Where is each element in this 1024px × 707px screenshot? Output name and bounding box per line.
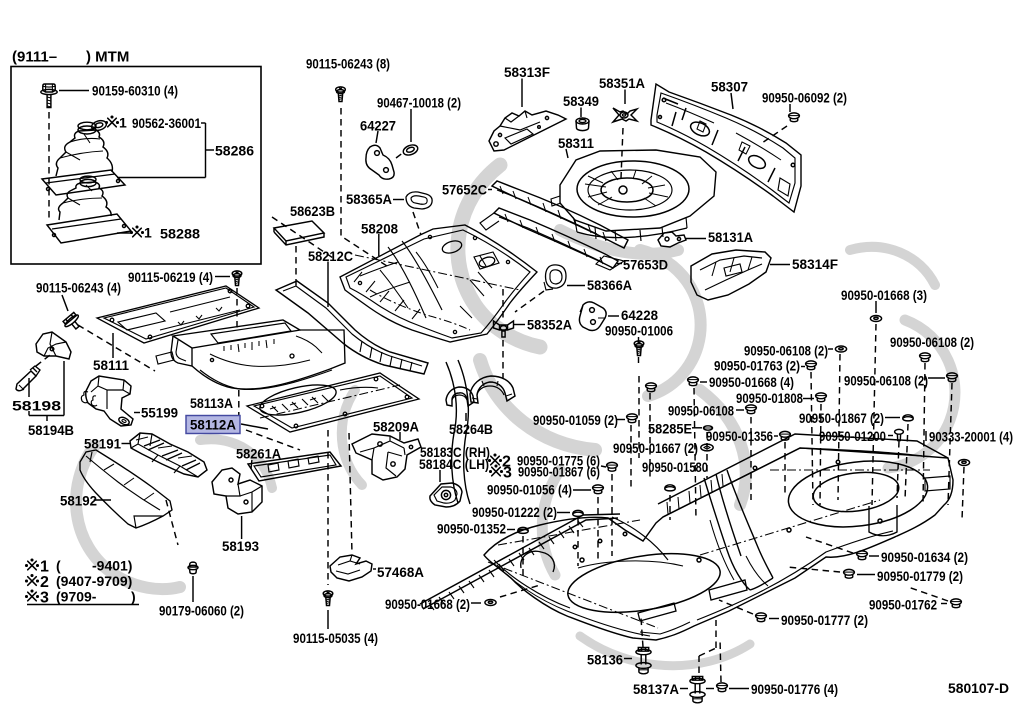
- svg-text:90950-01580: 90950-01580: [642, 459, 708, 475]
- svg-text:90950-01763 (2): 90950-01763 (2): [714, 358, 800, 374]
- svg-text:58623B: 58623B: [290, 203, 335, 219]
- svg-text:90950-01667 (2): 90950-01667 (2): [613, 440, 698, 456]
- svg-text:58307: 58307: [711, 79, 748, 95]
- svg-text:64228: 64228: [621, 307, 658, 323]
- svg-text:90950-01777 (2): 90950-01777 (2): [781, 612, 868, 628]
- svg-text:580107-D: 580107-D: [948, 680, 1009, 696]
- svg-text:90950-06108 (2): 90950-06108 (2): [890, 334, 974, 350]
- svg-text:58285E: 58285E: [648, 421, 692, 437]
- svg-text:90115-06219 (4): 90115-06219 (4): [128, 269, 213, 285]
- svg-text:90950-01352: 90950-01352: [437, 521, 506, 537]
- svg-text:90950-01867 (2): 90950-01867 (2): [799, 410, 884, 426]
- svg-text:90115-05035 (4): 90115-05035 (4): [293, 630, 378, 646]
- svg-text:58137A: 58137A: [633, 681, 679, 697]
- svg-text:90159-60310 (4): 90159-60310 (4): [92, 83, 178, 99]
- svg-text:3: 3: [503, 465, 512, 482]
- svg-text:58191: 58191: [84, 436, 121, 452]
- svg-text:58131A: 58131A: [708, 229, 753, 245]
- svg-text:90950-06108 (2): 90950-06108 (2): [844, 373, 928, 389]
- svg-text:90950-01867 (6): 90950-01867 (6): [518, 464, 600, 480]
- svg-text:90950-01668 (3): 90950-01668 (3): [841, 287, 927, 303]
- svg-text:58351A: 58351A: [599, 75, 645, 91]
- svg-text:90950-01808: 90950-01808: [736, 390, 803, 406]
- svg-text:58313F: 58313F: [504, 64, 550, 80]
- svg-text:90179-06060 (2): 90179-06060 (2): [159, 603, 244, 619]
- svg-text:58113A: 58113A: [190, 395, 233, 411]
- svg-text:90115-06243 (4): 90115-06243 (4): [36, 280, 121, 296]
- svg-text:90950-01006: 90950-01006: [605, 323, 673, 339]
- svg-text:58365A: 58365A: [346, 191, 392, 207]
- svg-text:90950-01776 (4): 90950-01776 (4): [751, 681, 838, 697]
- svg-text:58208: 58208: [361, 221, 398, 237]
- svg-text:): ): [131, 589, 136, 605]
- svg-text:58193: 58193: [222, 538, 259, 554]
- svg-text:55199: 55199: [141, 405, 178, 421]
- svg-text:(: (: [56, 558, 61, 574]
- svg-text:90950-01059 (2): 90950-01059 (2): [533, 412, 618, 428]
- svg-text:58288: 58288: [160, 226, 200, 242]
- svg-text:58264B: 58264B: [449, 421, 493, 437]
- svg-text:58286: 58286: [215, 143, 254, 159]
- svg-text:90950-01634 (2): 90950-01634 (2): [881, 549, 968, 565]
- svg-text:90333-20001 (4): 90333-20001 (4): [929, 429, 1013, 445]
- svg-text:90950-06108 (2): 90950-06108 (2): [744, 343, 828, 359]
- svg-text:(9407-9709): (9407-9709): [56, 573, 132, 589]
- svg-text:58112A: 58112A: [190, 417, 236, 433]
- svg-text:58314F: 58314F: [792, 256, 838, 272]
- svg-text:58194B: 58194B: [28, 422, 74, 438]
- svg-text:58111: 58111: [93, 357, 129, 373]
- svg-text:57653D: 57653D: [623, 257, 668, 273]
- svg-text:(9111–: (9111–: [12, 49, 57, 66]
- svg-text:1: 1: [40, 559, 49, 576]
- svg-text:90950-01356: 90950-01356: [706, 428, 773, 444]
- svg-text:58349: 58349: [563, 93, 599, 109]
- svg-text:90950-01056 (4): 90950-01056 (4): [487, 482, 572, 498]
- svg-text:57652C: 57652C: [442, 182, 487, 198]
- svg-text:90950-06108: 90950-06108: [668, 403, 734, 419]
- svg-text:90115-06243 (8): 90115-06243 (8): [306, 56, 390, 72]
- svg-text:) MTM: ) MTM: [86, 49, 129, 66]
- svg-text:(9709-: (9709-: [56, 589, 97, 605]
- svg-text:1: 1: [144, 225, 152, 241]
- svg-text:58209A: 58209A: [373, 418, 419, 434]
- svg-text:3: 3: [40, 590, 49, 607]
- svg-text:64227: 64227: [360, 118, 396, 134]
- svg-text:90950-01668 (4): 90950-01668 (4): [709, 374, 794, 390]
- svg-text:90950-06092 (2): 90950-06092 (2): [762, 90, 847, 106]
- svg-text:90950-01762: 90950-01762: [869, 597, 937, 613]
- svg-text:58311: 58311: [558, 135, 594, 151]
- svg-text:90562-36001: 90562-36001: [132, 115, 201, 131]
- svg-text:90950-01668 (2): 90950-01668 (2): [385, 596, 470, 612]
- svg-text:90950-01200: 90950-01200: [819, 428, 886, 444]
- svg-text:58212C: 58212C: [308, 248, 353, 264]
- svg-text:2: 2: [40, 574, 49, 591]
- svg-text:58184C (LH): 58184C (LH): [419, 456, 489, 472]
- svg-text:58192: 58192: [60, 493, 97, 509]
- svg-text:57468A: 57468A: [377, 564, 424, 580]
- svg-text:58136: 58136: [587, 652, 623, 668]
- svg-text:58198: 58198: [12, 398, 61, 414]
- svg-text:90467-10018 (2): 90467-10018 (2): [377, 95, 461, 111]
- svg-text:58366A: 58366A: [587, 277, 632, 293]
- svg-text:1: 1: [119, 115, 127, 131]
- svg-text:58352A: 58352A: [527, 317, 572, 333]
- svg-text:90950-01222 (2): 90950-01222 (2): [472, 504, 557, 520]
- svg-text:-9401): -9401): [92, 558, 132, 574]
- svg-text:58261A: 58261A: [236, 446, 281, 462]
- svg-text:90950-01779 (2): 90950-01779 (2): [877, 568, 963, 584]
